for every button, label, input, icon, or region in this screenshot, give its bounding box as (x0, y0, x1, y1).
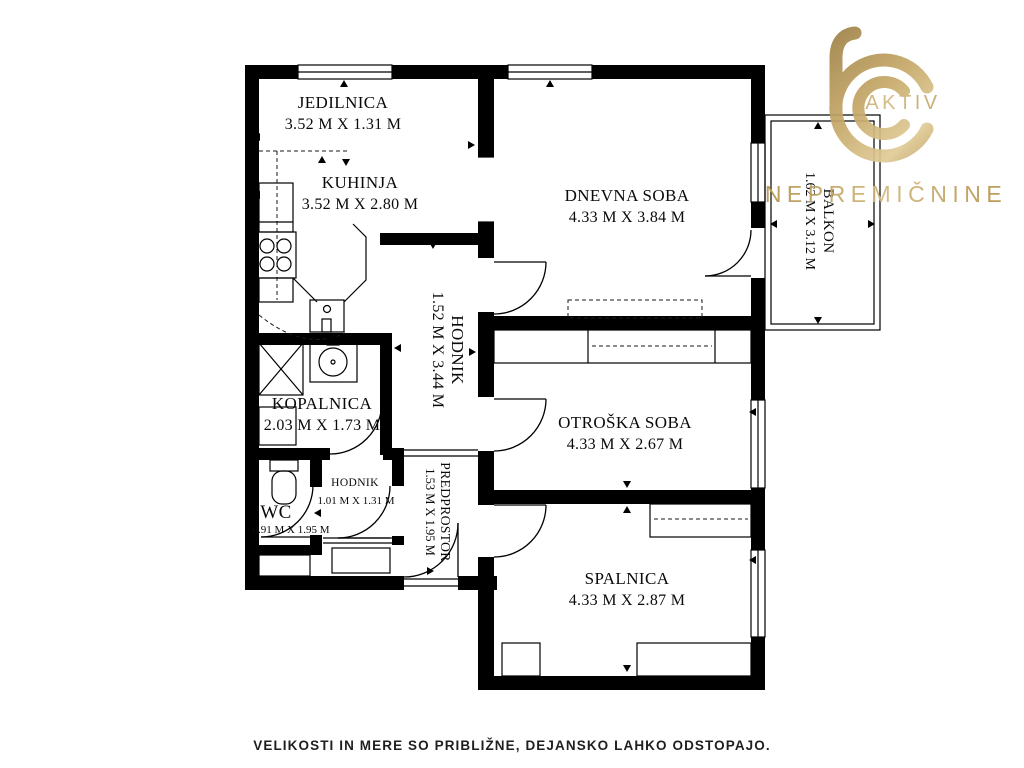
disclaimer-text: VELIKOSTI IN MERE SO PRIBLIŽNE, DEJANSKO… (253, 738, 771, 753)
room-dims-kopalnica: 2.03 M X 1.73 M (264, 417, 381, 434)
room-label-otroska-soba: OTROŠKA SOBA (558, 413, 692, 432)
brand-name-bottom: NEPREMIČNINE (765, 180, 1007, 207)
room-dims-jedilnica: 3.52 M X 1.31 M (285, 116, 402, 133)
logo: AKTIV NEPREMIČNINE (765, 33, 1007, 207)
room-label-spalnica: SPALNICA (585, 569, 670, 588)
room-label-jedilnica: JEDILNICA (298, 93, 389, 112)
wc-fixtures (270, 460, 298, 504)
room-dims-predprostor: 1.53 M X 1.95 M (423, 468, 437, 556)
room-label-kuhinja: KUHINJA (322, 173, 399, 192)
room-dims-hodnik-mali: 1.01 M X 1.31 M (317, 495, 394, 507)
room-labels: JEDILNICA 3.52 M X 1.31 M KUHINJA 3.52 M… (252, 93, 836, 609)
room-dims-dnevna-soba: 4.33 M X 3.84 M (569, 209, 686, 226)
room-label-dnevna-soba: DNEVNA SOBA (565, 186, 690, 205)
room-dims-otroska-soba: 4.33 M X 2.67 M (567, 436, 684, 453)
room-dims-wc: 0.91 M X 1.95 M (252, 524, 329, 536)
room-label-hodnik-mali: HODNIK (331, 477, 379, 489)
room-label-hodnik: HODNIK (448, 315, 467, 385)
room-label-wc: WC (260, 502, 292, 523)
room-dims-spalnica: 4.33 M X 2.87 M (569, 592, 686, 609)
room-label-kopalnica: KOPALNICA (272, 394, 373, 413)
room-dims-hodnik: 1.52 M X 3.44 M (429, 292, 446, 409)
room-label-predprostor: PREDPROSTOR (438, 462, 453, 561)
brand-name-top: AKTIV (865, 92, 940, 114)
floorplan-page: JEDILNICA 3.52 M X 1.31 M KUHINJA 3.52 M… (0, 0, 1024, 768)
room-dims-kuhinja: 3.52 M X 2.80 M (302, 196, 419, 213)
floorplan: JEDILNICA 3.52 M X 1.31 M KUHINJA 3.52 M… (0, 0, 1024, 768)
